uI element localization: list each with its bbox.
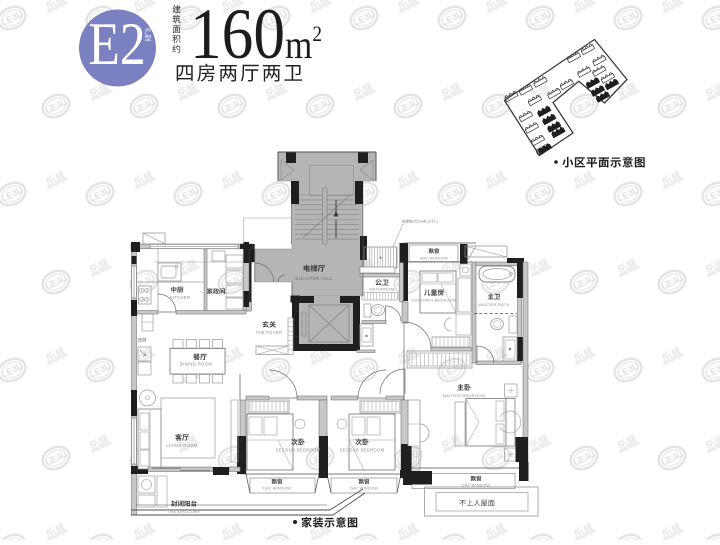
svg-text:DINING ROOM: DINING ROOM [180,362,212,367]
svg-text:DAY WINDOW: DAY WINDOW [263,487,291,491]
svg-text:ELEVATOR HALL: ELEVATOR HALL [295,276,333,281]
svg-text:BATHROOM: BATHROOM [369,287,394,292]
svg-text:KITCHEN: KITCHEN [170,295,190,300]
svg-text:BAY WINDOW: BAY WINDOW [420,257,448,261]
svg-text:CHILDREN BEDROOM: CHILDREN BEDROOM [412,299,457,303]
svg-text:E2: E2 [88,11,145,77]
svg-text:SECOND BEDROOM: SECOND BEDROOM [276,448,321,453]
svg-text:DAY WINDOW: DAY WINDOW [350,487,378,491]
svg-text:SECOND BEDROOM: SECOND BEDROOM [340,448,385,453]
svg-text:THE BALCONY: THE BALCONY [168,509,201,514]
svg-text:LIVING ROOM: LIVING ROOM [166,443,197,448]
svg-text:THE FOYER: THE FOYER [256,330,283,335]
svg-text:MASTER BEDROOM: MASTER BEDROOM [443,393,486,398]
svg-text:MASTER BATH: MASTER BATH [478,302,509,307]
